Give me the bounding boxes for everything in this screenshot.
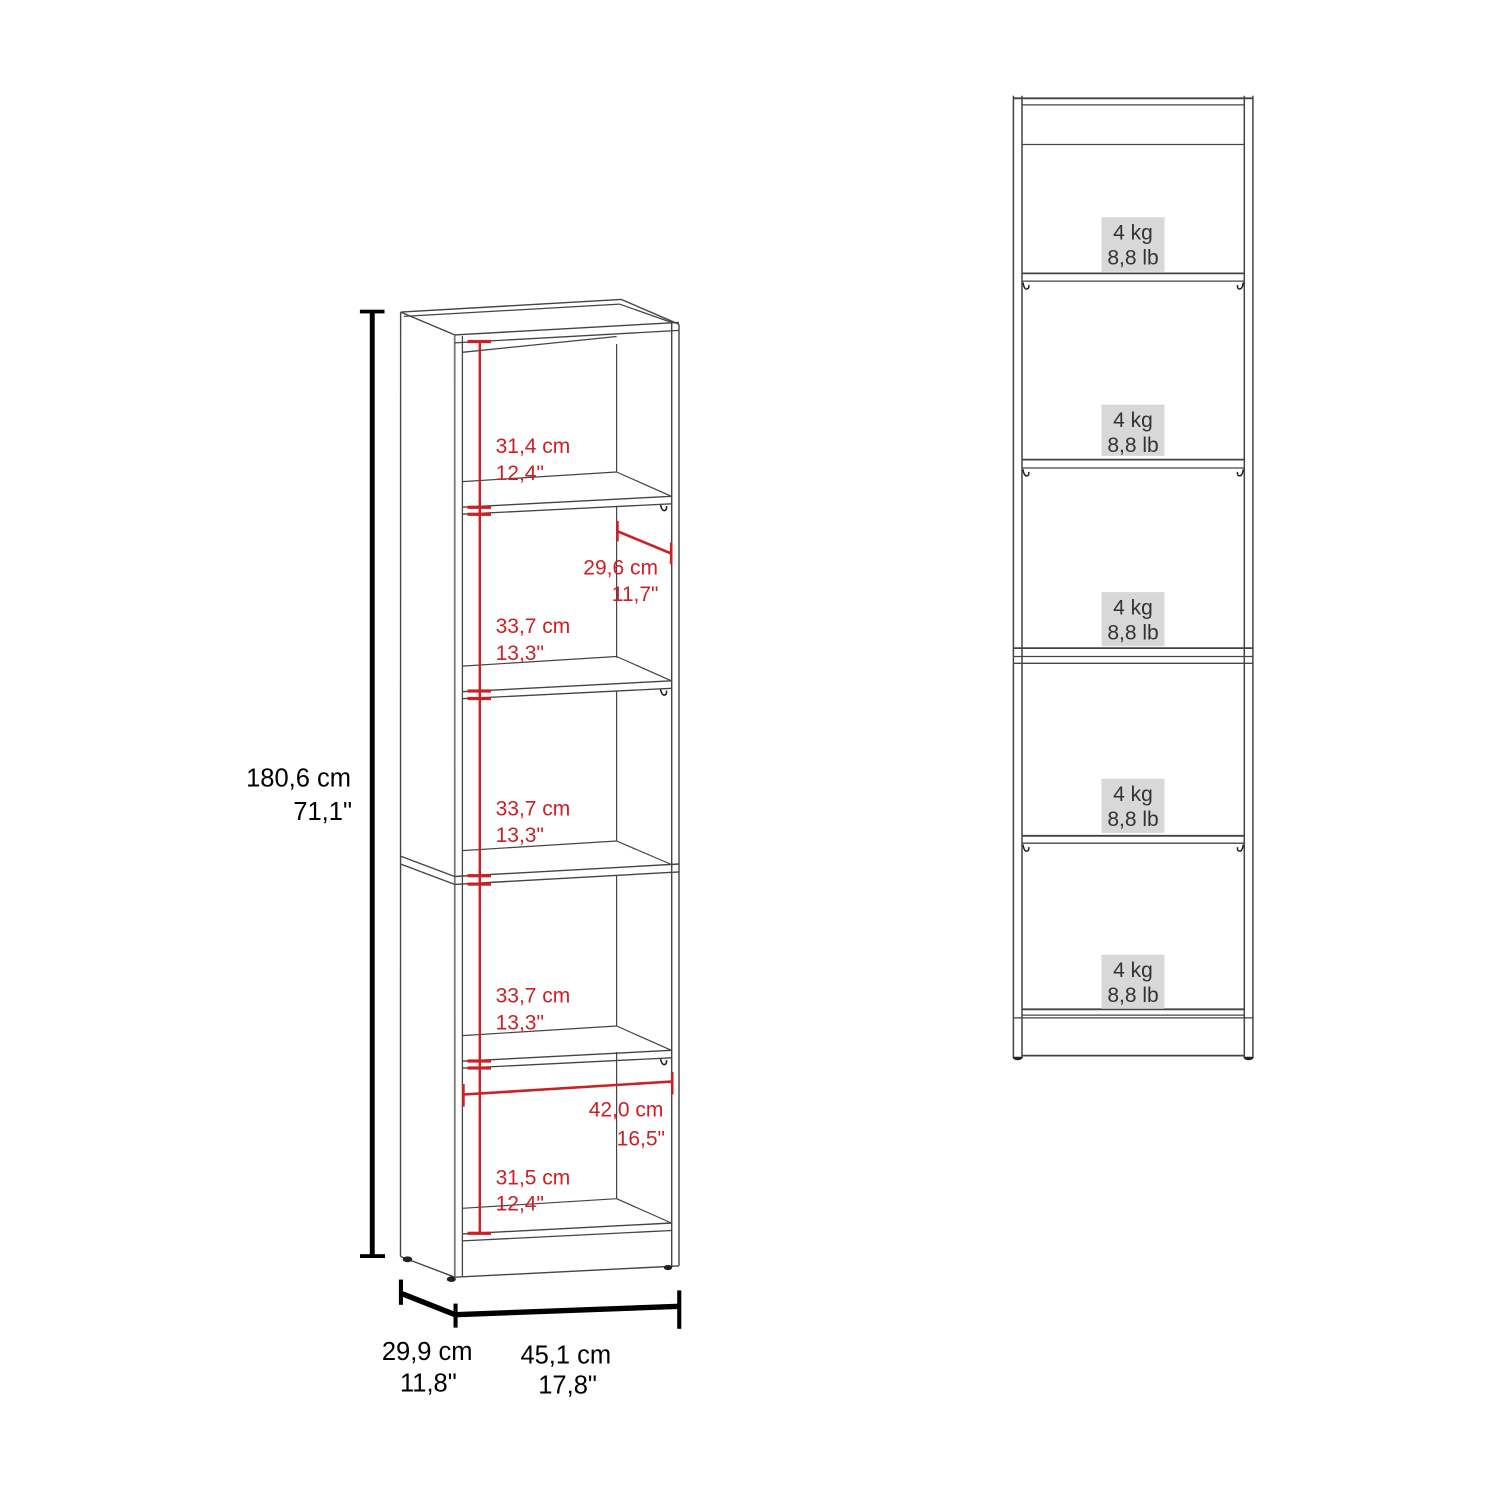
svg-text:16,5": 16,5": [617, 1128, 665, 1151]
svg-text:45,1 cm: 45,1 cm: [520, 1342, 611, 1370]
svg-text:8,8 lb: 8,8 lb: [1107, 621, 1158, 644]
svg-text:4 kg: 4 kg: [1113, 783, 1153, 806]
svg-text:4 kg: 4 kg: [1113, 959, 1153, 982]
svg-text:12,4": 12,4": [496, 1192, 544, 1215]
svg-text:42,0 cm: 42,0 cm: [589, 1098, 664, 1121]
svg-text:31,5 cm: 31,5 cm: [496, 1166, 571, 1189]
svg-text:29,6 cm: 29,6 cm: [583, 557, 658, 580]
svg-text:29,9 cm: 29,9 cm: [382, 1338, 473, 1366]
svg-text:12,4": 12,4": [496, 462, 544, 485]
svg-text:17,8": 17,8": [538, 1372, 597, 1400]
svg-text:8,8 lb: 8,8 lb: [1107, 434, 1158, 457]
svg-text:13,3": 13,3": [496, 642, 544, 665]
svg-text:13,3": 13,3": [496, 1012, 544, 1035]
svg-text:33,7 cm: 33,7 cm: [496, 798, 571, 821]
svg-text:13,3": 13,3": [496, 824, 544, 847]
svg-text:8,8 lb: 8,8 lb: [1107, 984, 1158, 1007]
svg-text:71,1": 71,1": [293, 798, 352, 826]
svg-text:4 kg: 4 kg: [1113, 222, 1153, 245]
svg-text:31,4 cm: 31,4 cm: [496, 435, 571, 458]
svg-text:4 kg: 4 kg: [1113, 409, 1153, 432]
svg-text:11,7": 11,7": [612, 583, 659, 606]
svg-text:33,7 cm: 33,7 cm: [496, 615, 571, 638]
svg-text:180,6 cm: 180,6 cm: [246, 764, 351, 792]
svg-text:8,8 lb: 8,8 lb: [1107, 808, 1158, 831]
svg-text:11,8": 11,8": [400, 1369, 457, 1397]
svg-text:33,7 cm: 33,7 cm: [496, 984, 571, 1007]
svg-text:8,8 lb: 8,8 lb: [1107, 246, 1158, 269]
svg-text:4 kg: 4 kg: [1113, 597, 1153, 620]
